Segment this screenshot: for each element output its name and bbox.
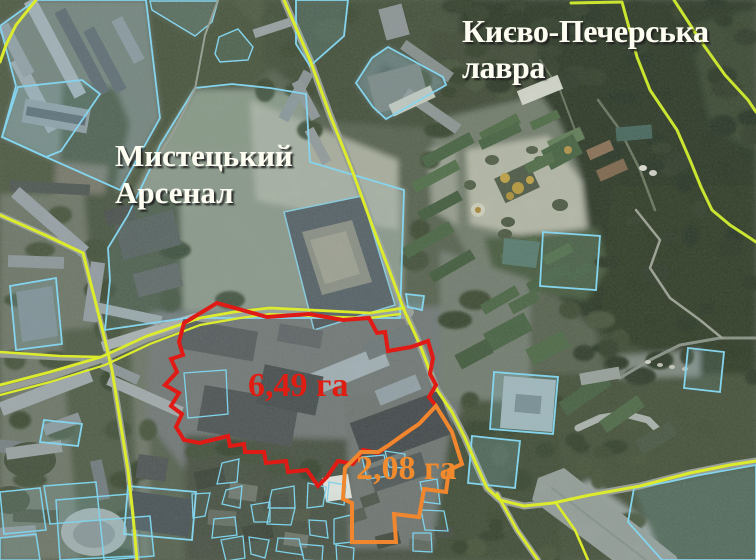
svg-text:2,08 га: 2,08 га: [356, 450, 456, 487]
svg-text:Києво-Печерська: Києво-Печерська: [462, 13, 709, 49]
svg-text:Мистецький: Мистецький: [115, 138, 293, 173]
svg-text:лавра: лавра: [462, 49, 545, 85]
svg-text:Арсенал: Арсенал: [115, 175, 234, 210]
svg-text:6,49 га: 6,49 га: [248, 367, 348, 404]
